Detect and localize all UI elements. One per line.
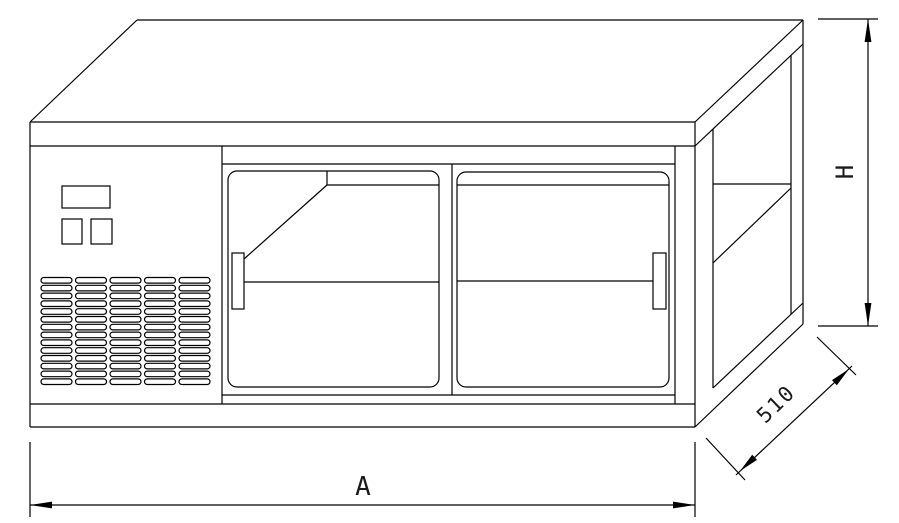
vent-slot (41, 356, 72, 362)
vent-slot (179, 309, 210, 315)
vent-slot (145, 371, 176, 377)
height-arrow-down (865, 303, 872, 326)
vent-slot (179, 278, 210, 284)
vent-slot (41, 332, 72, 338)
vent-slot (110, 340, 141, 346)
side-frame (713, 55, 791, 388)
vent-slot (145, 293, 176, 299)
right-sliding-door (457, 172, 669, 387)
plinth-side-top-edge (713, 303, 803, 388)
vent-slot (41, 371, 72, 377)
left-door-handle (232, 253, 244, 309)
height-dimension-label: H (831, 165, 859, 179)
vent-slot (110, 324, 141, 330)
left-door-outline (228, 171, 439, 387)
vent-slot (41, 309, 72, 315)
vent-slot (145, 379, 176, 385)
depth-arrow-front (740, 455, 757, 471)
vent-slot (145, 340, 176, 346)
vent-slot (179, 332, 210, 338)
vent-slot (76, 285, 107, 291)
vent-slot (179, 363, 210, 369)
worktop-surface (30, 20, 803, 146)
right-door-handle (653, 253, 666, 309)
vent-slot (179, 379, 210, 385)
width-dimension-label: A (355, 472, 371, 502)
vent-slot (76, 363, 107, 369)
vent-slot (41, 324, 72, 330)
vent-slot (110, 356, 141, 362)
vent-slot (179, 340, 210, 346)
vent-slot (179, 293, 210, 299)
worktop-right-edge (695, 20, 803, 122)
vent-slot (76, 293, 107, 299)
vent-slot (41, 317, 72, 323)
width-arrow-left (30, 502, 52, 509)
dimension-arrowheads (30, 19, 871, 508)
control-button-left (62, 219, 82, 244)
machine-compartment-panel (41, 146, 222, 404)
vent-slot (76, 379, 107, 385)
vent-slot (76, 348, 107, 354)
vent-slot (179, 324, 210, 330)
worktop-left-edge (30, 20, 137, 122)
vent-slot (41, 293, 72, 299)
left-sliding-door (228, 171, 439, 387)
vent-slot (110, 301, 141, 307)
depth-extension-front (706, 438, 745, 480)
control-button-right (91, 219, 112, 244)
vent-slot (76, 309, 107, 315)
ventilation-grille (41, 278, 210, 385)
vent-slot (145, 285, 176, 291)
vent-slot (76, 332, 107, 338)
bottom-right-edge (695, 324, 803, 427)
worktop-side-band-bottom (695, 44, 803, 146)
vent-slot (110, 293, 141, 299)
right-door-outline (457, 172, 669, 387)
vent-slot (41, 301, 72, 307)
vent-slot (145, 363, 176, 369)
vent-slot (110, 285, 141, 291)
vent-slot (179, 348, 210, 354)
vent-slot (179, 371, 210, 377)
vent-slot (110, 371, 141, 377)
control-display (62, 186, 110, 208)
vent-slot (110, 278, 141, 284)
technical-drawing-canvas: H 510 A (0, 0, 899, 523)
vent-slot (76, 356, 107, 362)
vent-slot (41, 348, 72, 354)
vent-slot (76, 371, 107, 377)
vent-slot (179, 317, 210, 323)
vent-slot (179, 301, 210, 307)
vent-slot (41, 363, 72, 369)
cabinet-body-outline (30, 20, 803, 427)
vent-slot (110, 309, 141, 315)
refrigerated-counter-drawing: H 510 A (0, 0, 899, 523)
depth-extension-back (817, 337, 856, 375)
vent-slot (76, 340, 107, 346)
vent-slot (41, 285, 72, 291)
vent-slot (76, 324, 107, 330)
width-arrow-right (673, 502, 695, 509)
vent-slot (76, 317, 107, 323)
vent-slot (179, 356, 210, 362)
vent-slot (179, 285, 210, 291)
vent-slot (110, 332, 141, 338)
vent-slot (145, 317, 176, 323)
glass-reflection-line (244, 185, 327, 259)
vent-slot (145, 309, 176, 315)
vent-slot (145, 278, 176, 284)
vent-slot (145, 332, 176, 338)
vent-slot (110, 348, 141, 354)
vent-slot (41, 340, 72, 346)
interior-shelf-edge (713, 188, 791, 263)
vent-slot (110, 379, 141, 385)
vent-slot (110, 363, 141, 369)
height-arrow-up (865, 19, 872, 42)
vent-slot (76, 278, 107, 284)
vent-slot (145, 324, 176, 330)
vent-slot (41, 379, 72, 385)
vent-slot (110, 317, 141, 323)
vent-slot (76, 301, 107, 307)
vent-slot (145, 348, 176, 354)
vent-slot (41, 278, 72, 284)
vent-slot (145, 301, 176, 307)
depth-arrow-back (832, 369, 849, 385)
vent-slot (145, 356, 176, 362)
